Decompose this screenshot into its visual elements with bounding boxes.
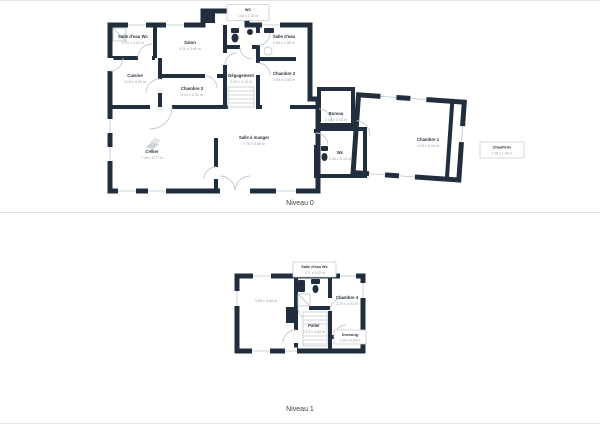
room-dims-degagement: 2.29 x 4.13 m xyxy=(230,80,252,84)
level-1-panel: 3.85 x 5.68 m Chambre 4 2.79 x 4.01 m Pa… xyxy=(0,213,600,423)
chimney-block xyxy=(286,307,296,323)
room-dims-salle-a-manger: 7.70 x 5.86 m xyxy=(243,142,265,146)
box-label-wc-dims: 1.64 x 1.32 m xyxy=(238,14,259,18)
floor-plan-page: Salle d'eau Wc 2.91 x 2.63 m Salon 4.11 … xyxy=(0,0,600,424)
level1-fixtures xyxy=(298,279,320,306)
room-label-salle-a-manger: Salle à manger xyxy=(239,135,270,140)
room-label-degagement: Dégagement xyxy=(228,73,254,78)
level0-door-arcs xyxy=(110,33,332,191)
room-dims-palier: 2.73 x 3.65 m xyxy=(303,330,325,334)
room-dims-chambre2: 2.95 x 3.56 m xyxy=(273,78,295,82)
level0-chambre1-block xyxy=(353,91,468,183)
level-1-caption: Niveau 1 xyxy=(286,406,314,413)
floor-plan-level-0: Salle d'eau Wc 2.91 x 2.63 m Salon 4.11 … xyxy=(0,1,600,212)
room-label-bureau: Bureau xyxy=(329,111,344,116)
level0-interior-walls xyxy=(110,25,318,191)
wc-boxed-label: WC 1.64 x 1.32 m xyxy=(227,5,269,21)
room-dims-salle-deau: 2.95 x 1.88 m xyxy=(273,41,295,45)
box-label-salle-deau-wc-name: Salle d'eau Wc xyxy=(301,265,327,269)
box-label-chaufferie-name: Chaufferie xyxy=(493,146,512,150)
room-dims-wc-bas: 2.34 x 2.12 m xyxy=(329,157,351,161)
room-dims-salon: 4.11 x 3.80 m xyxy=(179,47,201,51)
room-label-cellier: Cellier xyxy=(145,149,158,154)
floor-plan-level-1: 3.85 x 5.68 m Chambre 4 2.79 x 4.01 m Pa… xyxy=(0,213,600,423)
room-dims-chambre4: 2.79 x 4.01 m xyxy=(336,302,358,306)
box-label-wc-name: WC xyxy=(245,8,252,12)
room-label-salle-deau: Salle d'eau xyxy=(273,34,296,39)
room-label-chambre2: Chambre 2 xyxy=(273,71,296,76)
room-label-palier: Palier xyxy=(308,323,320,328)
box-label-chaufferie-dims: 1.05 x 1.44 m xyxy=(492,152,513,156)
room-dims-cellier: 7.48 x 5.77 m xyxy=(141,156,163,160)
chaufferie-boxed-label: Chaufferie 1.05 x 1.44 m xyxy=(480,142,524,158)
room-dims-cuisine: 3.18 x 3.60 m xyxy=(124,80,146,84)
room-label-chambre1: Chambre 1 xyxy=(417,137,440,142)
level1-stairs xyxy=(303,312,327,346)
room-dims-salle-deau-wc: 2.91 x 2.63 m xyxy=(122,41,144,45)
room-dims-left-room: 3.85 x 5.68 m xyxy=(255,299,277,303)
room-label-chambre3: Chambre 3 xyxy=(181,86,204,91)
cellier-marker-icon xyxy=(146,138,161,149)
room-label-wc-bas: Wc xyxy=(337,150,344,155)
dressing-boxed-label: Dressing 2.30 x 0.93 m xyxy=(334,330,366,344)
room-label-chambre4: Chambre 4 xyxy=(336,295,359,300)
room-dims-bureau: 2.34 x 3.10 m xyxy=(325,118,347,122)
room-label-salon: Salon xyxy=(184,40,196,45)
level0-stairs xyxy=(228,87,254,107)
salle-deau-wc-boxed-label: Salle d'eau Wc 1.71 x 3.62 m xyxy=(293,262,336,277)
level-0-panel: Salle d'eau Wc 2.91 x 2.63 m Salon 4.11 … xyxy=(0,1,600,213)
box-label-dressing-dims: 2.30 x 0.93 m xyxy=(340,339,361,343)
room-dims-chambre1: 4.23 x 5.44 m xyxy=(417,144,439,148)
room-label-salle-deau-wc: Salle d'eau Wc xyxy=(118,34,149,39)
box-label-dressing-name: Dressing xyxy=(342,333,359,337)
room-label-cuisine: Cuisine xyxy=(127,73,143,78)
level-0-caption: Niveau 0 xyxy=(286,200,314,207)
box-label-salle-deau-wc-dims: 1.71 x 3.62 m xyxy=(304,271,325,275)
room-dims-chambre3: 3.13 x 2.51 m xyxy=(181,93,203,97)
